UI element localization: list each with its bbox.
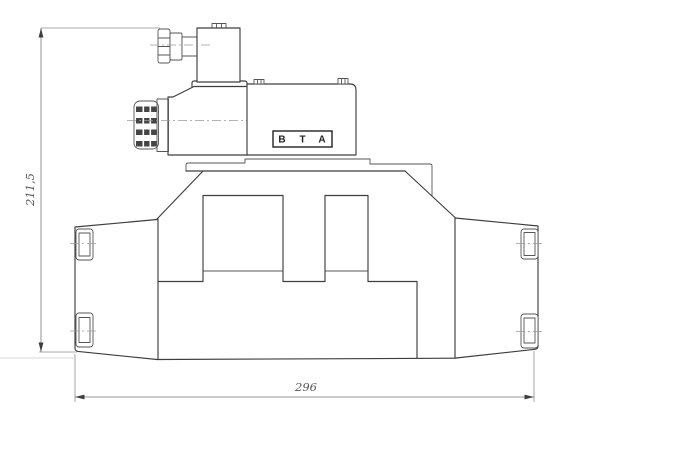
valve-technical-drawing: B T A	[0, 0, 683, 467]
port-label-a: A	[318, 135, 325, 146]
block-chamfer-right	[405, 171, 455, 218]
bracket-right-hole-bottom	[516, 314, 544, 348]
electrical-connector	[158, 24, 247, 93]
land-right	[325, 196, 368, 282]
arrowhead-right-icon	[525, 395, 535, 400]
valve-body: B T A	[247, 79, 356, 156]
port-label-b: B	[278, 135, 285, 146]
dimension-height: 211,5	[23, 28, 160, 352]
cable-gland	[158, 29, 198, 63]
arrowhead-up-icon	[39, 28, 44, 38]
bracket-right-hole-top	[516, 229, 544, 259]
manual-override-knob	[134, 99, 169, 152]
arrowhead-left-icon	[75, 395, 85, 400]
arrowhead-down-icon	[39, 343, 44, 353]
port-label-box: B T A	[273, 131, 332, 147]
dimension-width-label: 296	[294, 380, 317, 394]
dimension-height-label: 211,5	[23, 173, 37, 207]
mounting-bracket-left	[70, 220, 157, 360]
mounting-bracket-right	[455, 218, 544, 358]
bracket-left-hole-top	[70, 229, 98, 260]
connector-housing	[197, 28, 240, 82]
block-chamfer-left	[157, 171, 203, 219]
bracket-left-hole-bottom	[70, 313, 98, 347]
land-left	[203, 196, 283, 282]
knob-collar	[157, 99, 169, 152]
port-label-t: T	[299, 135, 305, 146]
interface-plate	[186, 159, 432, 196]
drawing-canvas: B T A	[0, 0, 683, 467]
main-block	[157, 171, 456, 360]
body-screw-right-icon	[338, 79, 348, 85]
body-screw-left-icon	[254, 80, 264, 85]
block-bottom-edge	[157, 358, 456, 359]
